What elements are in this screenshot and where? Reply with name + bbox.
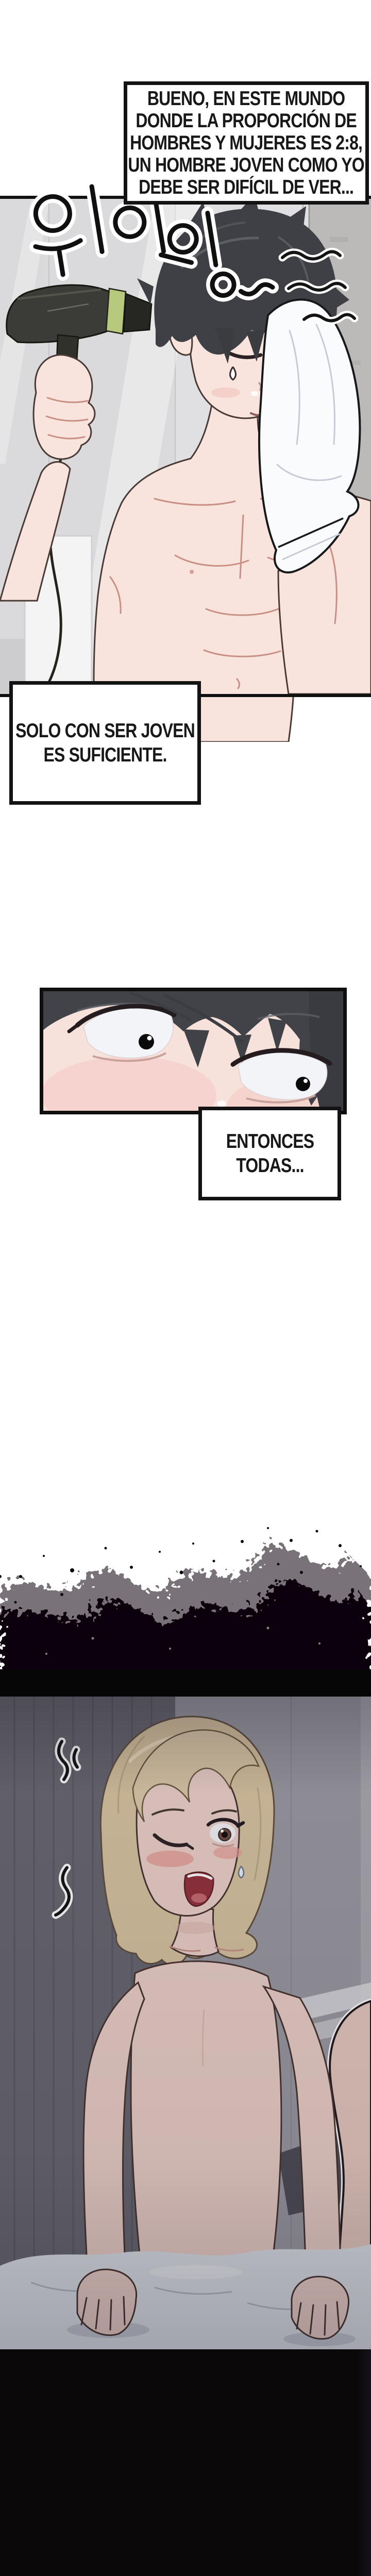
- narration-box-2: SOLO CON SER JOVEN ES SUFICIENTE.: [9, 681, 201, 805]
- panel-bedroom-woman: [0, 1697, 371, 2349]
- dim-overlay: [0, 1697, 371, 2349]
- panel-man-drying-hair: [0, 180, 371, 742]
- narration-line: SOLO CON SER JOVEN: [15, 719, 195, 743]
- narration-line: HOMBRES Y MUJERES ES 2:8,: [128, 132, 365, 154]
- dryer-green-band: [106, 289, 126, 334]
- narration-box-1: BUENO, EN ESTE MUNDO DONDE LA PROPORCIÓN…: [124, 81, 369, 205]
- narration-box-3: ENTONCES TODAS...: [198, 1107, 341, 1200]
- hand-on-dryer: [33, 355, 95, 459]
- sweat-drop: [230, 367, 236, 380]
- webtoon-page: BUENO, EN ESTE MUNDO DONDE LA PROPORCIÓN…: [0, 0, 371, 2576]
- panel-eyes-closeup: [40, 988, 347, 1114]
- narration-line: ENTONCES: [226, 1129, 314, 1154]
- narration-line: BUENO, EN ESTE MUNDO: [128, 88, 365, 110]
- closing-black-band: [0, 2349, 371, 2576]
- narration-line: DEBE SER DIFÍCIL DE VER...: [128, 176, 365, 198]
- ink-transition: [0, 1515, 371, 1697]
- narration-line: ES SUFICIENTE.: [15, 743, 195, 767]
- narration-line: TODAS...: [226, 1154, 314, 1178]
- narration-line: UN HOMBRE JOVEN COMO YO: [128, 154, 365, 176]
- narration-line: DONDE LA PROPORCIÓN DE: [128, 110, 365, 132]
